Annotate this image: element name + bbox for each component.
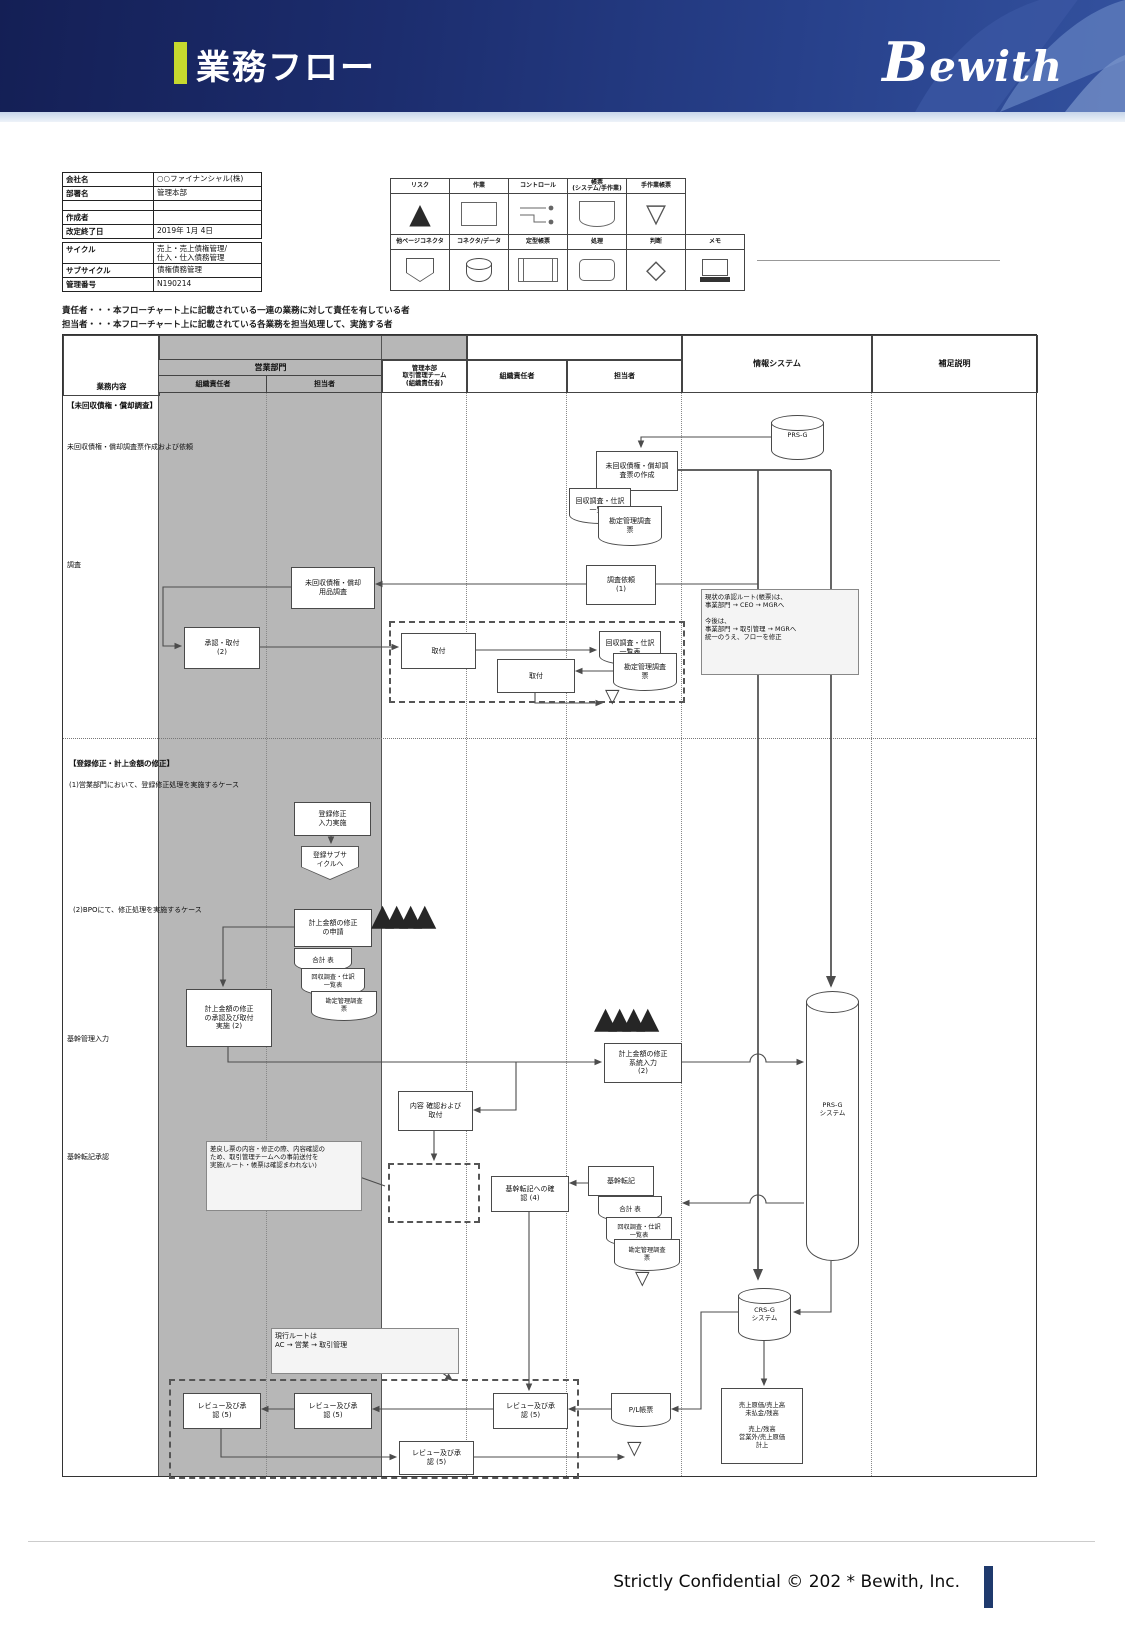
legend-cell-document: 帳票 (システム/手作業) bbox=[567, 178, 627, 235]
legend-cell-offpage: 他ページコネクタ bbox=[390, 234, 450, 291]
offpage-connector-icon bbox=[406, 258, 434, 282]
process-review-1: レビュー及び承 認 (5) bbox=[183, 1393, 261, 1429]
legend-row-2: 他ページコネクタ コネクタ/データ 定型帳票 処理 判断 ◇ メモ bbox=[390, 234, 744, 291]
page-title: 業務フロー bbox=[196, 40, 376, 89]
meta-row bbox=[63, 201, 261, 211]
definition-person-in-charge: 担当者・・・本フローチャート上に記載されている各業務を担当処理して、実施する者 bbox=[62, 318, 392, 330]
flowchart-table: 業務内容 営業部門 組織責任者 担当者 管理本部 取引管理チーム (組織責任者)… bbox=[62, 334, 1037, 1477]
predefined-process-icon bbox=[518, 258, 558, 282]
legend-cell-decision: 判断 ◇ bbox=[626, 234, 686, 291]
process-kikan-confirm: 基幹転記への確 認 (4) bbox=[491, 1176, 569, 1212]
page-header: 業務フロー Bewith bbox=[0, 0, 1125, 112]
note-approval-route: 現状の承認ルート(帳票)は、 事業部門 → CEO → MGRへ 今後は、 事業… bbox=[701, 589, 859, 675]
footer-divider bbox=[28, 1541, 1095, 1542]
control-arrows-icon bbox=[516, 201, 560, 227]
risk-triangle-icon: ▲ bbox=[409, 200, 431, 228]
document-ledger-control: 勘定管理調査 票 bbox=[613, 653, 677, 691]
process-reg-fix-input: 登録修正 入力実施 bbox=[294, 802, 371, 836]
note-presend: 差戻し票の内容・修正の際、内容確認の ため、取引管理チームへの事前送付を 実施(… bbox=[206, 1141, 362, 1211]
decision-diamond-icon: ◇ bbox=[646, 257, 666, 283]
legend-cell-predefined: 定型帳票 bbox=[508, 234, 568, 291]
process-review-4: レビュー及び承 認 (5) bbox=[399, 1441, 474, 1475]
process-fix-approve: 計上金額の修正 の承認及び取付 実施 (2) bbox=[186, 989, 272, 1047]
legend-cell-memo: メモ bbox=[685, 234, 745, 291]
file-triangle-icon: ▽ bbox=[627, 1439, 642, 1458]
process-create-survey: 未回収債権・償却調 査票の作成 bbox=[596, 451, 678, 491]
meta-row: 管理番号N190214 bbox=[63, 278, 261, 291]
row-label-kikan-approve: 基幹転記承認 bbox=[67, 1153, 157, 1162]
system-prs-g: PRS-G システム bbox=[806, 991, 859, 1261]
file-triangle-icon: ▽ bbox=[605, 687, 620, 706]
legend-cell-manual: 手作業帳票 ▽ bbox=[626, 178, 686, 235]
meta-table-1: 会社名○○ファイナンシャル(株) 部署名管理本部 作成者 改定終了日2019年 … bbox=[62, 172, 262, 239]
document-shape-icon bbox=[579, 201, 615, 227]
legend-cell-task: 作業 bbox=[449, 178, 509, 235]
meta-row: サイクル売上・売上債権管理/ 仕入・仕入債務管理 bbox=[63, 243, 261, 264]
footer-confidential: Strictly Confidential © 202 * Bewith, In… bbox=[0, 1572, 960, 1592]
process-sales-post: 売上原価/売上高 未払金/残高 売上/残高 営業外/売上原価 計上 bbox=[721, 1388, 803, 1464]
meta-row: 改定終了日2019年 1月 4日 bbox=[63, 225, 261, 238]
page: 業務フロー Bewith 会社名○○ファイナンシャル(株) 部署名管理本部 作成… bbox=[0, 0, 1125, 1625]
process-toritsuke-b: 取付 bbox=[497, 659, 575, 693]
meta-row: 部署名管理本部 bbox=[63, 187, 261, 201]
title-accent-bar bbox=[174, 42, 187, 84]
task-shape-icon bbox=[461, 202, 497, 226]
legend-cell-data: コネクタ/データ bbox=[449, 234, 509, 291]
meta-row: サブサイクル債権債務管理 bbox=[63, 264, 261, 278]
meta-row: 会社名○○ファイナンシャル(株) bbox=[63, 173, 261, 187]
row-label-survey: 調査 bbox=[67, 561, 147, 570]
process-survey-request: 調査依頼 (1) bbox=[586, 565, 656, 605]
process-toritsuke-a: 取付 bbox=[401, 633, 476, 669]
control-region-2 bbox=[388, 1163, 480, 1223]
document-ledger-survey: 勘定管理調査 票 bbox=[598, 506, 662, 546]
bewith-logo: Bewith bbox=[882, 30, 1063, 94]
legend-cell-risk: リスク ▲ bbox=[390, 178, 450, 235]
database-prs-g: PRS-G bbox=[771, 415, 824, 460]
process-fix-sysinput: 計上金額の修正 系統入力 (2) bbox=[604, 1043, 682, 1083]
definition-responsible: 責任者・・・本フローチャート上に記載されている一連の業務に対して責任を有している… bbox=[62, 304, 410, 316]
document-ledger-fix: 勘定管理調査 票 bbox=[311, 991, 377, 1021]
manual-triangle-icon: ▽ bbox=[646, 201, 666, 227]
legend-cell-control: コントロール bbox=[508, 178, 568, 235]
footer-accent-bar bbox=[984, 1566, 993, 1608]
meta-table-2: サイクル売上・売上債権管理/ 仕入・仕入債務管理 サブサイクル債権債務管理 管理… bbox=[62, 242, 262, 292]
row-label-kikan-input: 基幹管理入力 bbox=[67, 1035, 157, 1044]
case-label-2: (2)BPOにて、修正処理を実施するケース bbox=[73, 906, 383, 915]
process-kikan-tenki: 基幹転記 bbox=[588, 1166, 654, 1196]
section-label-2: 【登録修正・計上金額の修正】 bbox=[69, 759, 279, 769]
process-approve-2: 承認・取付 (2) bbox=[184, 627, 260, 669]
section-label-1: 【未回収債権・償却調査】 bbox=[67, 401, 237, 411]
document-meta: 会社名○○ファイナンシャル(株) 部署名管理本部 作成者 改定終了日2019年 … bbox=[62, 172, 262, 292]
legend-underline bbox=[757, 260, 1000, 261]
process-review-2: レビュー及び承 認 (5) bbox=[294, 1393, 372, 1429]
terminal-icon bbox=[702, 259, 728, 276]
flowchart-legend: リスク ▲ 作業 コントロール 帳票 (システム/手作業) bbox=[390, 178, 744, 291]
legend-cell-process: 処理 bbox=[567, 234, 627, 291]
data-drum-icon bbox=[466, 258, 492, 282]
document-pl: P/L帳票 bbox=[611, 1393, 671, 1427]
risk-triangles-icon: ▲▲▲▲ bbox=[594, 1004, 650, 1034]
case-label-1: (1)営業部門において、登録修正処理を実施するケース bbox=[69, 781, 399, 790]
legend-row-1: リスク ▲ 作業 コントロール 帳票 (システム/手作業) bbox=[390, 178, 744, 234]
process-content-check: 内容 確認および 取付 bbox=[398, 1091, 473, 1131]
meta-row: 作成者 bbox=[63, 211, 261, 225]
row-label-survey-create: 未回収債権・償却調査票作成および依頼 bbox=[67, 443, 307, 452]
file-triangle-icon: ▽ bbox=[635, 1269, 650, 1288]
offpage-reg-subcycle: 登録サブサ イクルへ bbox=[301, 846, 359, 880]
header-strip bbox=[0, 112, 1125, 122]
process-shape-icon bbox=[579, 259, 615, 281]
process-review-3: レビュー及び承 認 (5) bbox=[493, 1393, 568, 1429]
system-crs-g: CRS-G システム bbox=[738, 1288, 791, 1341]
note-current-route: 現行ルートは AC → 営業 → 取引管理 bbox=[271, 1328, 459, 1374]
process-survey-use: 未回収債権・償却 用品調査 bbox=[291, 567, 375, 609]
